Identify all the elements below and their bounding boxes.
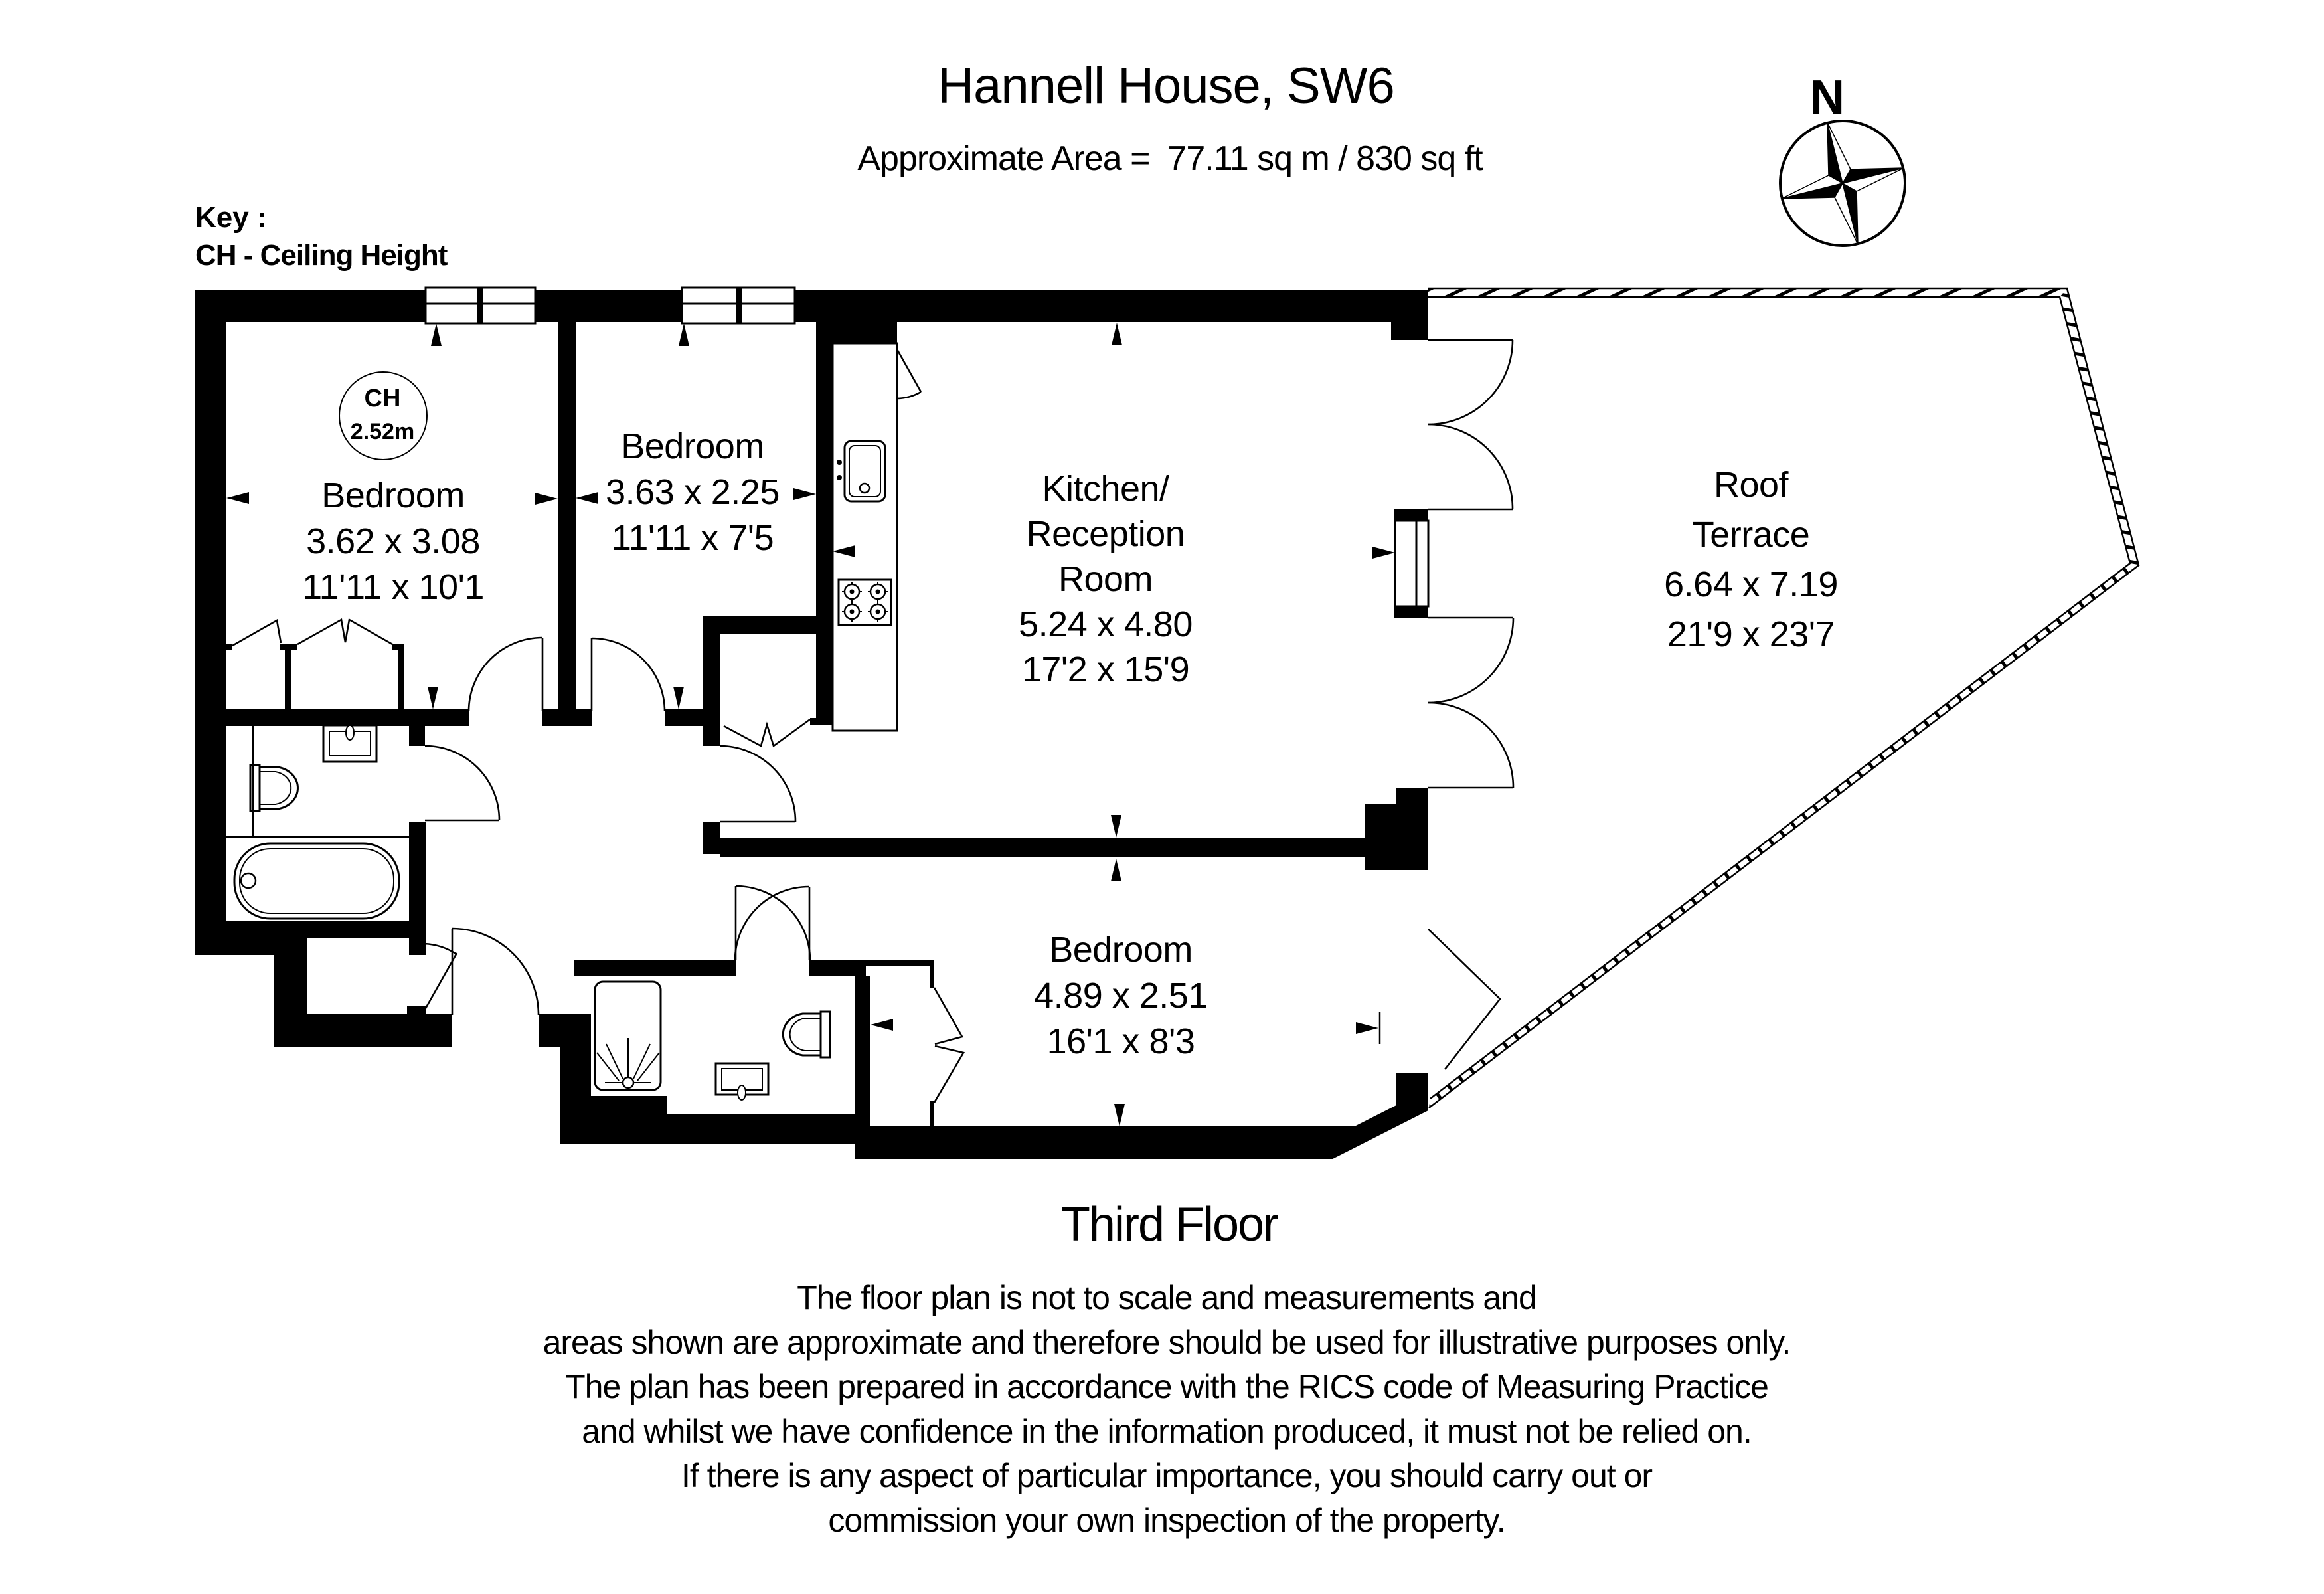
svg-text:Hannell House, SW6: Hannell House, SW6 xyxy=(938,58,1394,114)
svg-text:Approximate Area = 77.11 sq m: Approximate Area = 77.11 sq m / 830 sq f… xyxy=(857,139,1483,178)
svg-text:2.52m: 2.52m xyxy=(351,419,414,444)
svg-text:5.24 x 4.80: 5.24 x 4.80 xyxy=(1019,604,1193,644)
svg-text:6.64 x 7.19: 6.64 x 7.19 xyxy=(1664,565,1838,604)
svg-text:4.89 x 2.51: 4.89 x 2.51 xyxy=(1034,976,1208,1016)
svg-text:11'11 x 10'1: 11'11 x 10'1 xyxy=(302,567,484,607)
svg-text:Roof: Roof xyxy=(1714,465,1789,505)
svg-text:11'11 x 7'5: 11'11 x 7'5 xyxy=(612,518,774,558)
svg-text:3.62 x 3.08: 3.62 x 3.08 xyxy=(306,521,480,561)
svg-text:Key :: Key : xyxy=(195,201,267,234)
svg-text:Kitchen/: Kitchen/ xyxy=(1042,469,1169,509)
svg-text:Bedroom: Bedroom xyxy=(321,476,465,515)
svg-text:3.63 x 2.25: 3.63 x 2.25 xyxy=(606,472,780,512)
svg-text:CH: CH xyxy=(365,385,401,412)
svg-text:17'2 x 15'9: 17'2 x 15'9 xyxy=(1022,650,1189,689)
svg-text:Reception: Reception xyxy=(1027,514,1185,554)
svg-text:Bedroom: Bedroom xyxy=(621,426,764,466)
svg-text:21'9 x 23'7: 21'9 x 23'7 xyxy=(1667,614,1835,654)
svg-text:16'1 x 8'3: 16'1 x 8'3 xyxy=(1047,1021,1195,1061)
svg-text:Bedroom: Bedroom xyxy=(1049,930,1193,970)
svg-text:Third Floor: Third Floor xyxy=(1061,1198,1278,1251)
svg-text:The plan has been prepared in: The plan has been prepared in accordance… xyxy=(565,1368,1768,1405)
svg-text:Terrace: Terrace xyxy=(1693,515,1810,555)
svg-text:CH - Ceiling Height: CH - Ceiling Height xyxy=(195,239,448,272)
svg-text:N: N xyxy=(1810,71,1845,124)
svg-text:commission your own inspection: commission your own inspection of the pr… xyxy=(828,1502,1505,1539)
svg-text:areas shown are approximate an: areas shown are approximate and therefor… xyxy=(543,1324,1791,1361)
svg-text:and whilst we have confidence: and whilst we have confidence in the inf… xyxy=(582,1413,1752,1450)
svg-text:If there is any aspect of part: If there is any aspect of particular imp… xyxy=(681,1457,1652,1494)
svg-text:Room: Room xyxy=(1058,559,1153,599)
svg-text:The floor plan is not to scale: The floor plan is not to scale and measu… xyxy=(797,1279,1536,1316)
